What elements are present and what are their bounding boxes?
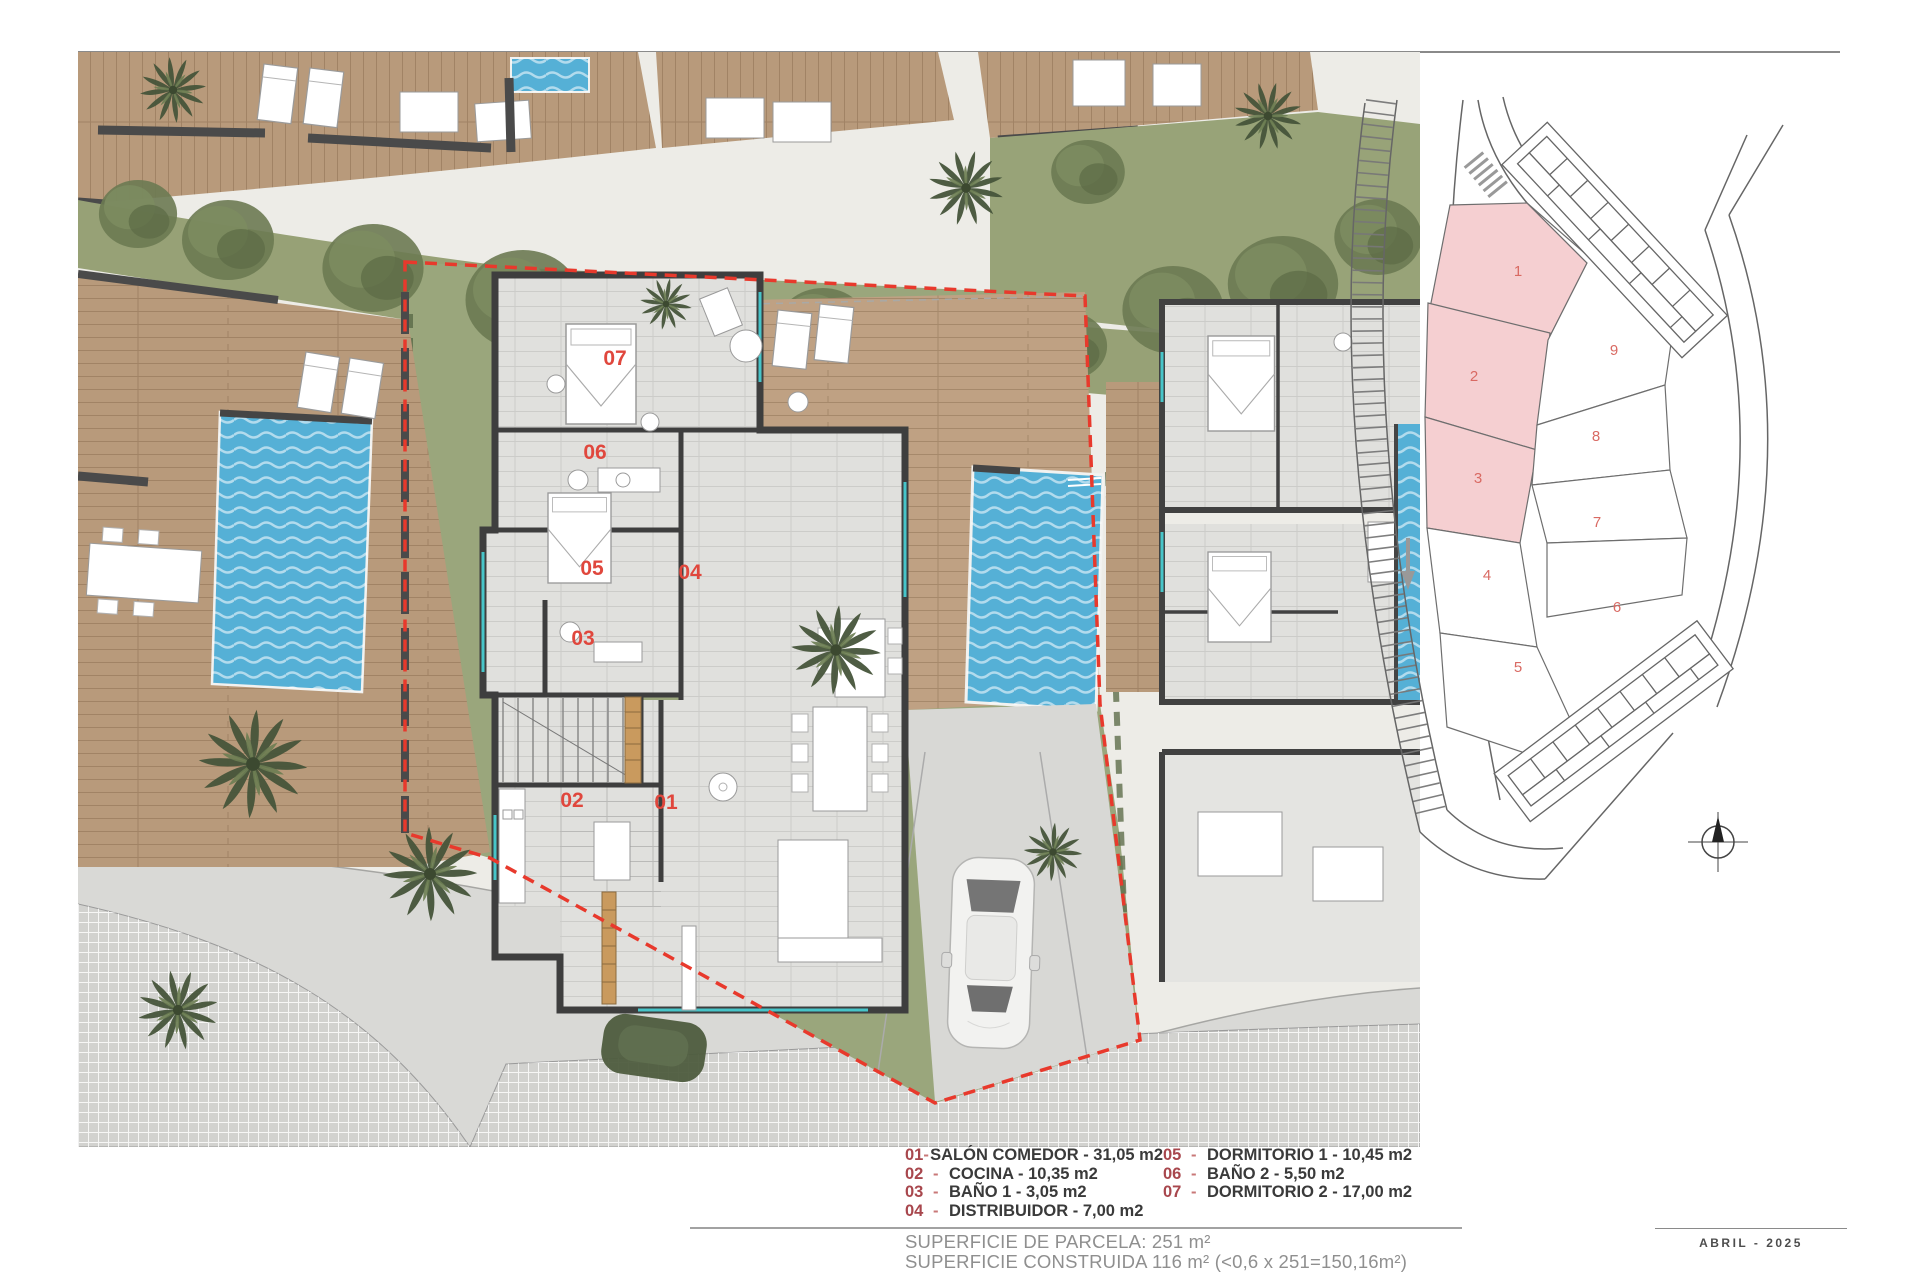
plot-number-9: 9 xyxy=(1610,342,1618,359)
legend-item: 02 - COCINA - 10,35 m2 xyxy=(905,1165,1163,1184)
room-legend: 01 - SALÓN COMEDOR - 31,05 m2 02 - COCIN… xyxy=(905,1146,1412,1220)
legend-item-label: DORMITORIO 2 - 17,00 m2 xyxy=(1207,1183,1412,1202)
legend-item: 04 - DISTRIBUIDOR - 7,00 m2 xyxy=(905,1202,1163,1221)
legend-item-number: 05 xyxy=(1163,1146,1191,1165)
legend-separator: - xyxy=(1191,1183,1207,1202)
legend-item-number: 07 xyxy=(1163,1183,1191,1202)
legend-item: 05 - DORMITORIO 1 - 10,45 m2 xyxy=(1163,1146,1412,1165)
legend-separator: - xyxy=(933,1183,949,1202)
legend-item-label: SALÓN COMEDOR - 31,05 m2 xyxy=(930,1146,1163,1165)
legend-item-label: BAÑO 2 - 5,50 m2 xyxy=(1207,1165,1345,1184)
pool-left xyxy=(212,412,372,692)
legend-item-number: 06 xyxy=(1163,1165,1191,1184)
floor-plan-graphic: 07 06 05 04 03 02 01 xyxy=(78,52,1420,1147)
room-label-07: 07 xyxy=(603,347,626,370)
plot-number-8: 8 xyxy=(1592,428,1600,445)
legend-item-number: 04 xyxy=(905,1202,933,1221)
legend-separator: - xyxy=(933,1202,949,1221)
legend-item-label: DORMITORIO 1 - 10,45 m2 xyxy=(1207,1146,1412,1165)
legend-separator: - xyxy=(1191,1165,1207,1184)
legend-item-number: 02 xyxy=(905,1165,933,1184)
crosswalk xyxy=(1473,159,1499,191)
legend-separator: - xyxy=(933,1165,949,1184)
room-label-05: 05 xyxy=(580,557,604,580)
legend-item: 07 - DORMITORIO 2 - 17,00 m2 xyxy=(1163,1183,1412,1202)
plot-number-3: 3 xyxy=(1474,470,1482,487)
legend-divider-line xyxy=(690,1227,1462,1229)
legend-item-number: 03 xyxy=(905,1183,933,1202)
legend-item-label: BAÑO 1 - 3,05 m2 xyxy=(949,1183,1087,1202)
car xyxy=(939,856,1044,1049)
sheet-date: ABRIL - 2025 xyxy=(1655,1236,1847,1250)
room-label-02: 02 xyxy=(560,789,583,812)
plot-number-5: 5 xyxy=(1514,659,1522,676)
legend-column-1: 01 - SALÓN COMEDOR - 31,05 m2 02 - COCIN… xyxy=(905,1146,1163,1220)
pool-top xyxy=(511,58,589,92)
room-label-03: 03 xyxy=(571,627,594,650)
legend-item-label: DISTRIBUIDOR - 7,00 m2 xyxy=(949,1202,1143,1221)
compass-icon xyxy=(1688,812,1748,872)
room-label-01: 01 xyxy=(654,791,678,814)
title-block-line xyxy=(1655,1228,1847,1229)
plot-number-4: 4 xyxy=(1483,567,1491,584)
room-label-04: 04 xyxy=(678,561,702,584)
plot-number-1: 1 xyxy=(1514,263,1522,280)
construida-line: SUPERFICIE CONSTRUIDA 116 m² (<0,6 x 251… xyxy=(905,1252,1407,1272)
parking-stalls xyxy=(1367,101,1433,820)
legend-item-label: COCINA - 10,35 m2 xyxy=(949,1165,1098,1184)
plot-number-6: 6 xyxy=(1613,599,1621,616)
sofa xyxy=(778,840,848,940)
surface-summary: SUPERFICIE DE PARCELA: 251 m² SUPERFICIE… xyxy=(905,1232,1407,1272)
architectural-sheet: 07 06 05 04 03 02 01 xyxy=(0,0,1920,1280)
legend-column-2: 05 - DORMITORIO 1 - 10,45 m2 06 - BAÑO 2… xyxy=(1163,1146,1412,1220)
dining-table xyxy=(813,707,867,811)
legend-separator: - xyxy=(1191,1146,1207,1165)
pool-main xyxy=(966,467,1103,710)
parcela-line: SUPERFICIE DE PARCELA: 251 m² xyxy=(905,1232,1407,1252)
legend-item: 06 - BAÑO 2 - 5,50 m2 xyxy=(1163,1165,1412,1184)
plot-4 xyxy=(1427,528,1537,647)
plot-number-7: 7 xyxy=(1593,514,1601,531)
plot-number-2: 2 xyxy=(1470,368,1478,385)
site-key-plan: 1 2 3 4 5 6 7 8 9 xyxy=(1335,93,1805,893)
legend-item-number: 01 xyxy=(905,1146,923,1165)
legend-separator: - xyxy=(923,1146,930,1165)
room-label-06: 06 xyxy=(583,441,606,464)
legend-item: 03 - BAÑO 1 - 3,05 m2 xyxy=(905,1183,1163,1202)
legend-item: 01 - SALÓN COMEDOR - 31,05 m2 xyxy=(905,1146,1163,1165)
